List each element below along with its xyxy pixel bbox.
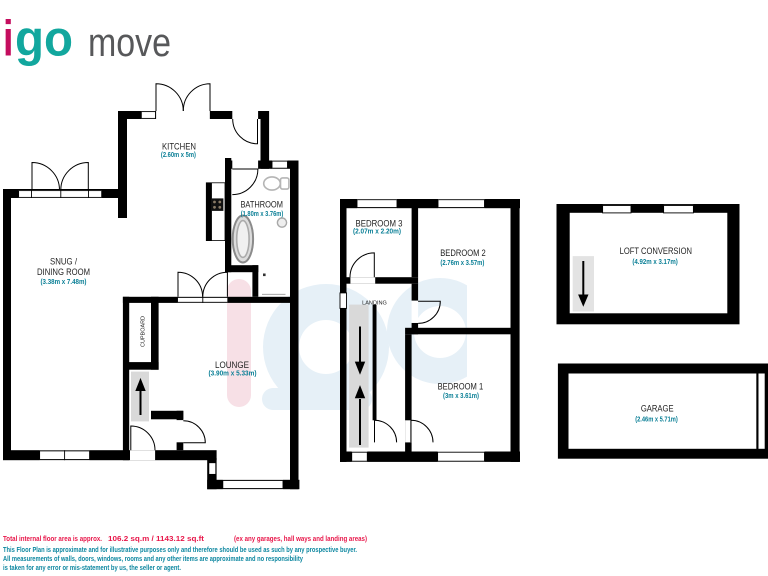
svg-text:(2.76m x 3.57m): (2.76m x 3.57m) [440, 260, 484, 267]
svg-text:All measurements of walls, doo: All measurements of walls, doors, window… [3, 556, 303, 563]
svg-text:(2.46m x 5.71m): (2.46m x 5.71m) [635, 416, 678, 423]
svg-text:(1.80m x 3.76m): (1.80m x 3.76m) [241, 211, 284, 218]
svg-text:BEDROOM 3: BEDROOM 3 [356, 218, 403, 228]
svg-text:(ex any garages, hall ways and: (ex any garages, hall ways and landing a… [234, 536, 367, 543]
svg-text:move: move [88, 21, 171, 65]
svg-text:106.2 sq.m / 1143.12 sq.ft: 106.2 sq.m / 1143.12 sq.ft [108, 536, 205, 543]
svg-text:(3.90m x 5.33m): (3.90m x 5.33m) [209, 370, 257, 377]
svg-text:(2.07m x 2.20m): (2.07m x 2.20m) [353, 229, 401, 236]
svg-text:BEDROOM 1: BEDROOM 1 [438, 382, 484, 392]
svg-text:(3.38m x 7.48m): (3.38m x 7.48m) [41, 279, 87, 286]
svg-text:BEDROOM 2: BEDROOM 2 [440, 248, 486, 258]
svg-text:is taken for any error or mis-: is taken for any error or mis-statement … [3, 565, 181, 572]
svg-text:(2.60m x 5m): (2.60m x 5m) [161, 152, 196, 159]
svg-text:LANDING: LANDING [362, 301, 387, 307]
svg-text:BATHROOM: BATHROOM [240, 200, 283, 210]
svg-text:This Floor Plan is approximate: This Floor Plan is approximate and for i… [3, 547, 357, 554]
svg-text:(3m x 3.61m): (3m x 3.61m) [443, 393, 479, 400]
svg-text:DINING ROOM: DINING ROOM [37, 267, 90, 277]
svg-text:CUPBOARD: CUPBOARD [141, 316, 147, 347]
svg-text:(4.92m x 3.17m): (4.92m x 3.17m) [632, 259, 677, 266]
svg-text:go: go [15, 11, 73, 67]
svg-text:Total internal floor area is a: Total internal floor area is approx. [3, 536, 102, 543]
svg-text:LOFT CONVERSION: LOFT CONVERSION [620, 246, 692, 256]
svg-text:SNUG /: SNUG / [50, 257, 77, 267]
svg-text:GARAGE: GARAGE [641, 403, 674, 413]
svg-text:LOUNGE: LOUNGE [215, 360, 249, 370]
svg-text:i: i [3, 11, 14, 67]
svg-text:KITCHEN: KITCHEN [162, 142, 196, 152]
